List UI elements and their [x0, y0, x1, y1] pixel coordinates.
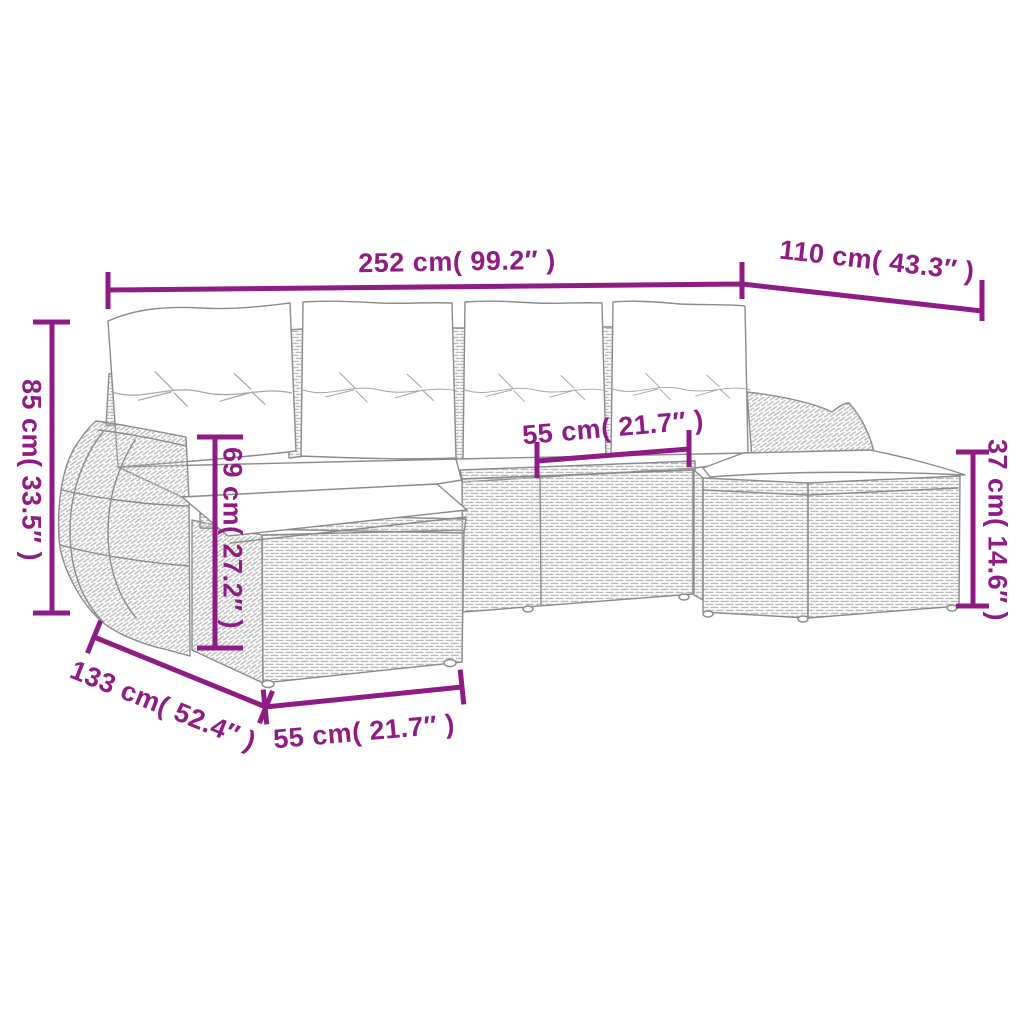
dim-label-back-height: 85 cm( 33.5″ ) — [16, 379, 47, 561]
right-ottoman — [703, 450, 965, 618]
product-dimension-diagram: 252 cm( 99.2″ ) 110 cm( 43.3″ ) 85 cm( 3… — [0, 0, 1024, 1024]
right-armrest — [747, 392, 874, 458]
back-cushions — [108, 301, 750, 467]
dim-label-overall-width: 252 cm( 99.2″ ) — [358, 245, 556, 279]
left-armrest — [59, 421, 190, 656]
dim-label-stool-height: 37 cm( 14.6″ ) — [982, 439, 1013, 621]
dim-label-seat-front-height: 69 cm( 27.2″ ) — [217, 447, 248, 629]
sofa-line-art — [0, 0, 1024, 1024]
center-base — [460, 461, 703, 612]
